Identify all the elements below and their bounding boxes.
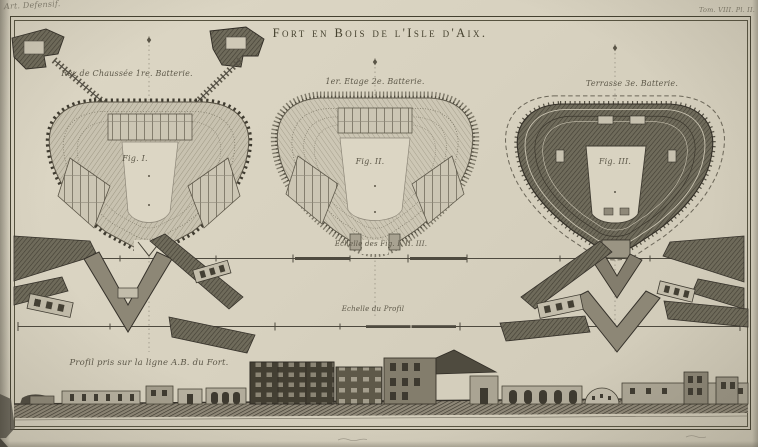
fig3-caption: Terrasse 3e. Batterie. [557,80,707,89]
fig3-plan [506,96,725,298]
fig1-corner-bastion-left [12,29,64,69]
plate-drawing [0,0,758,447]
engraver-signature-mark [338,436,706,441]
plate-title: Fort en Bois de l'Isle d'Aix. [240,27,520,41]
fig2-caption: 1er. Etage 2e. Batterie. [300,78,450,87]
fig2-plan [277,98,472,254]
scan-edge-blot [0,394,15,447]
fig1-caption: Rez de Chaussée 1re. Batterie. [47,70,207,79]
fig1-ground-plan [49,102,248,256]
profile-scale-label: Echelle du Profil [303,306,443,314]
plate-reference: Tom. VIII. Pl. II. [675,7,755,14]
fig3-label: Fig. III. [585,158,645,167]
figures-scale-label: Echelle des Fig. I. II. III. [301,241,461,249]
fig2-label: Fig. II. [340,158,400,167]
fig1-label: Fig. I. [105,155,165,164]
profile-caption: Profil pris sur la ligne A.B. du Fort. [54,359,244,368]
engraving-plate-page: Art. Defensif. Tom. VIII. Pl. II. Fort e… [0,0,758,447]
fig1-jetties [54,60,240,103]
